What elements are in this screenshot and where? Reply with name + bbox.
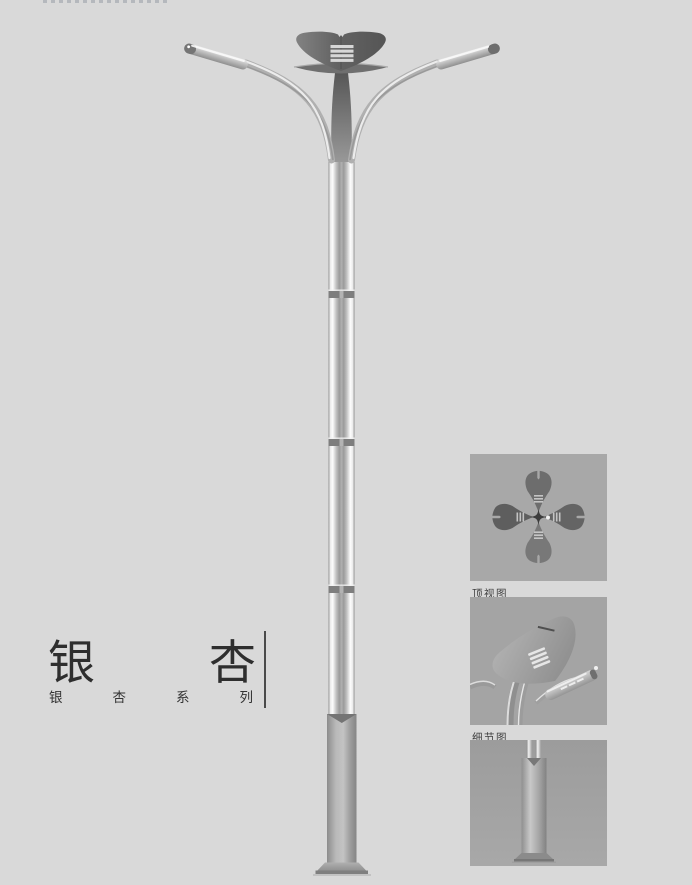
left-lamp-fixture xyxy=(183,42,249,70)
lamp-stem xyxy=(331,69,352,162)
detail-view-image xyxy=(470,597,607,730)
series-char: 杏 xyxy=(113,690,127,706)
top-view-image xyxy=(470,454,607,586)
title-char: 银 xyxy=(48,639,95,686)
base-view-image xyxy=(470,740,607,871)
ginkgo-lamp-head xyxy=(294,32,388,74)
title-divider-line xyxy=(264,631,266,708)
product-title: 银 杏 xyxy=(48,639,256,686)
thumbnail-base-view xyxy=(470,740,607,874)
pole-base xyxy=(313,714,371,876)
catalog-page: 银 杏 银 杏 系 列 xyxy=(0,0,692,885)
thumbnail-top-view: 顶视图 xyxy=(470,454,607,601)
product-series: 银 杏 系 列 xyxy=(49,690,253,706)
title-char: 杏 xyxy=(209,639,256,686)
right-lamp-fixture xyxy=(435,42,501,70)
series-char: 列 xyxy=(240,690,254,706)
thumbnail-detail-view: 细节图 xyxy=(470,597,607,745)
series-char: 银 xyxy=(49,690,63,706)
series-char: 系 xyxy=(176,690,190,706)
pole xyxy=(329,138,355,716)
